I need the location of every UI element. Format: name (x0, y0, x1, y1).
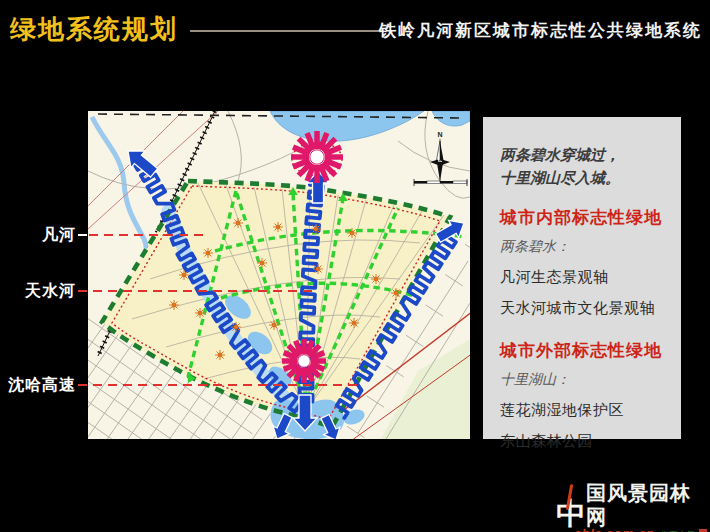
outer-green-heading: 城市外部标志性绿地 (500, 339, 671, 362)
map-label-tianshuihe: 天水河 (0, 281, 315, 301)
tianshuihe-label: 天水河 (0, 281, 76, 302)
inner-item-1: 凡河生态景观轴 (500, 268, 671, 287)
site-watermark: 中 国风景园林网 chla.com.cn 华夏之风 (556, 481, 708, 531)
svg-text:N: N (437, 131, 442, 138)
fanhe-callout-line (89, 234, 207, 236)
intro-line-1: 两条碧水穿城过， (500, 143, 671, 166)
map-label-shenha: 沈哈高速 (0, 375, 362, 395)
shenha-callout-line (78, 384, 362, 386)
page-title: 绿地系统规划 (10, 12, 178, 47)
inner-green-heading: 城市内部标志性绿地 (500, 206, 671, 229)
fanhe-label: 凡河 (0, 225, 76, 246)
shenha-label: 沈哈高速 (0, 375, 76, 396)
outer-green-subheading: 十里湖山： (500, 371, 671, 389)
info-panel: 两条碧水穿城过， 十里湖山尽入城。 城市内部标志性绿地 两条碧水： 凡河生态景观… (483, 117, 681, 439)
header-divider-line (190, 30, 382, 32)
page-subtitle: 铁岭凡河新区城市标志性公共绿地系统 (379, 19, 702, 42)
fanhe-tick (78, 234, 87, 236)
watermark-first-char: 中 (556, 499, 586, 529)
outer-item-1: 莲花湖湿地保护区 (500, 401, 671, 420)
tianshuihe-callout-line (78, 290, 315, 292)
outer-item-2: 东山森林公园 (500, 432, 671, 451)
watermark-url: chla.com.cn (574, 526, 655, 532)
watermark-rest-chars: 国风景园林网 (586, 481, 708, 529)
inner-item-2: 天水河城市文化景观轴 (500, 299, 671, 318)
inner-green-subheading: 两条碧水： (500, 238, 671, 256)
watermark-site-name: 中 国风景园林网 (556, 481, 708, 529)
intro-line-2: 十里湖山尽入城。 (500, 166, 671, 189)
map-label-fanhe: 凡河 (0, 225, 207, 245)
